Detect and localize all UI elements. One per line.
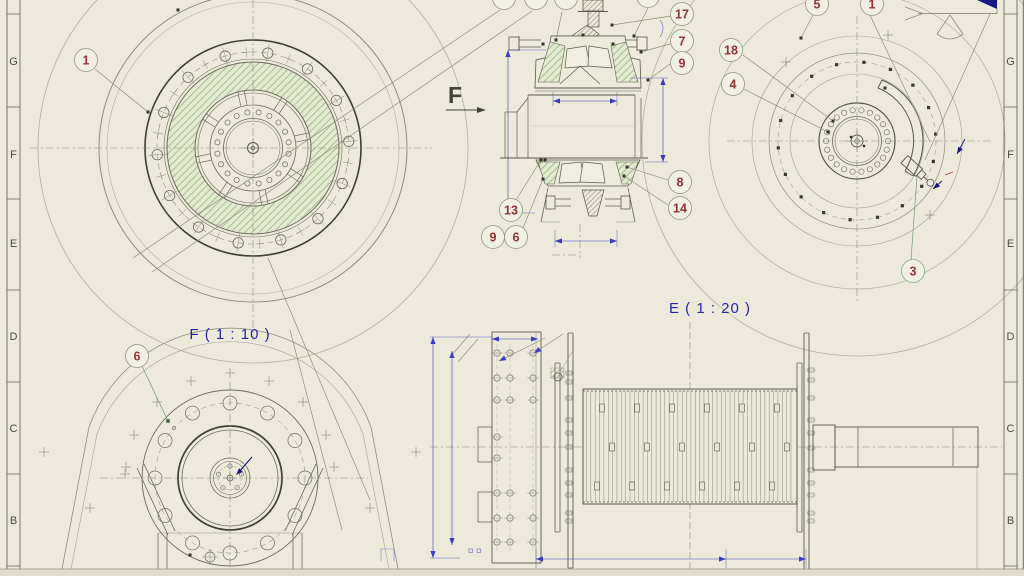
cad-drawing-viewport: 1177981413965118436 GGFFEEDDCCBB F ( 1 :… xyxy=(0,0,1024,576)
zone-letter-right-5: B xyxy=(1007,515,1014,527)
balloon-front-1[interactable]: 1 xyxy=(75,49,98,72)
zone-letter-right-0: G xyxy=(1006,56,1015,68)
zone-letter-right-4: C xyxy=(1007,423,1015,435)
zone-letter-right-3: D xyxy=(1007,331,1015,343)
balloon-number-front-1: 1 xyxy=(83,53,90,67)
balloon-number-section-7: 7 xyxy=(679,34,686,48)
balloon-number-section-14: 14 xyxy=(673,201,687,215)
balloon-number-rear-5: 5 xyxy=(814,0,821,11)
zone-letter-left-1: F xyxy=(10,149,17,161)
view-label-e-scale[interactable]: E ( 1 : 20 ) xyxy=(669,300,751,317)
sheet-background xyxy=(0,0,1024,576)
zone-letter-left-2: E xyxy=(10,238,17,250)
view-label-f-scale[interactable]: F ( 1 : 10 ) xyxy=(189,326,270,343)
balloon-number-section-8: 8 xyxy=(677,175,684,189)
zone-letter-right-1: F xyxy=(1007,149,1014,161)
balloon-pedestal-6[interactable]: 6 xyxy=(126,345,149,368)
balloon-number-rear-18: 18 xyxy=(724,43,738,57)
balloon-number-section-13: 13 xyxy=(504,203,518,217)
view-direction-label-f[interactable]: F xyxy=(448,82,462,108)
zone-letter-left-5: B xyxy=(10,515,17,527)
balloon-number-section-17: 17 xyxy=(675,7,689,21)
balloon-section-13[interactable]: 13 xyxy=(500,199,523,222)
drawing-sheet: 1177981413965118436 GGFFEEDDCCBB F ( 1 :… xyxy=(0,0,1024,576)
balloon-number-section-9-lower: 9 xyxy=(490,230,497,244)
balloon-section-9-upper[interactable]: 9 xyxy=(671,52,694,75)
zone-letter-left-0: G xyxy=(9,56,18,68)
balloon-number-rear-3: 3 xyxy=(910,264,917,278)
zone-letter-left-4: C xyxy=(10,423,18,435)
balloon-section-8[interactable]: 8 xyxy=(669,171,692,194)
zone-letter-left-3: D xyxy=(10,331,18,343)
balloon-section-17[interactable]: 17 xyxy=(671,3,694,26)
balloon-number-section-9-upper: 9 xyxy=(679,56,686,70)
balloon-number-pedestal-6: 6 xyxy=(134,349,141,363)
balloon-section-14[interactable]: 14 xyxy=(669,197,692,220)
balloon-number-rear-1: 1 xyxy=(869,0,876,11)
balloon-rear-4[interactable]: 4 xyxy=(722,73,745,96)
balloon-number-rear-4: 4 xyxy=(730,77,737,91)
balloon-section-7[interactable]: 7 xyxy=(671,30,694,53)
balloon-section-9-lower[interactable]: 9 xyxy=(482,226,505,249)
balloon-rear-18[interactable]: 18 xyxy=(720,39,743,62)
balloon-rear-3[interactable]: 3 xyxy=(902,260,925,283)
zone-letter-right-2: E xyxy=(1007,238,1014,250)
balloon-section-6[interactable]: 6 xyxy=(505,226,528,249)
balloon-number-section-6: 6 xyxy=(513,230,520,244)
